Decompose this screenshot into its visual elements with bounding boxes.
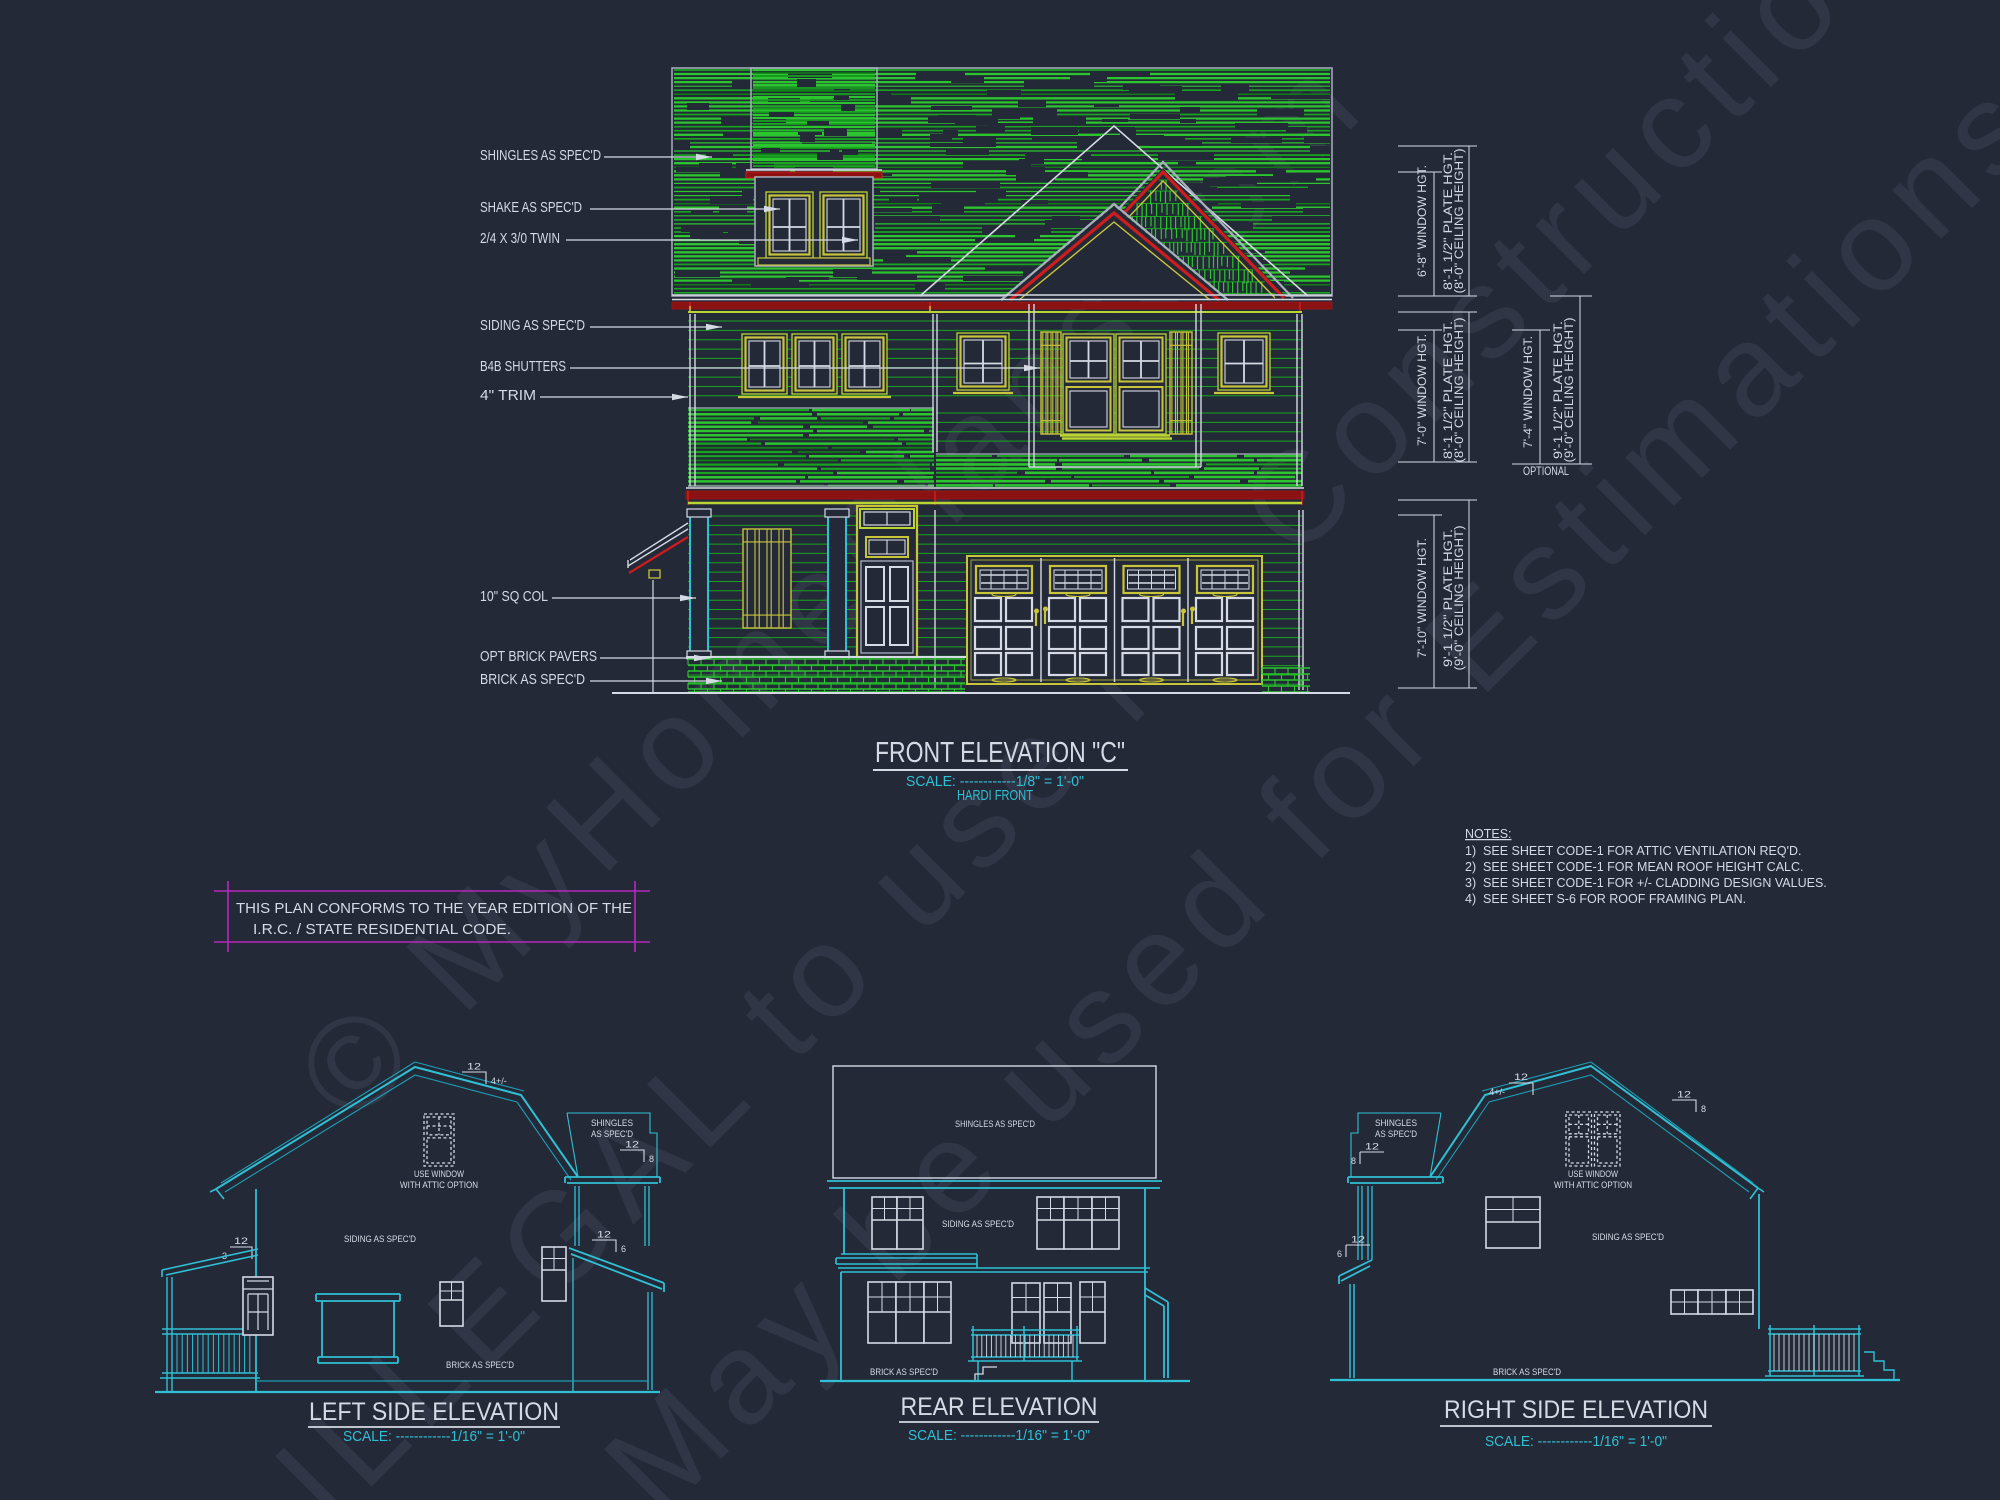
svg-text:NOTES:: NOTES: [1465, 827, 1512, 841]
svg-text:BRICK AS SPEC'D: BRICK AS SPEC'D [446, 1360, 514, 1370]
svg-text:6: 6 [621, 1244, 626, 1254]
svg-text:SCALE: ------------1/16" = 1'-: SCALE: ------------1/16" = 1'-0" [1485, 1433, 1667, 1450]
svg-text:SCALE: ------------1/16" = 1'-: SCALE: ------------1/16" = 1'-0" [343, 1428, 525, 1445]
svg-text:OPT BRICK PAVERS: OPT BRICK PAVERS [480, 648, 597, 665]
svg-text:WITH ATTIC OPTION: WITH ATTIC OPTION [400, 1180, 478, 1190]
svg-text:6'-8" WINDOW HGT.: 6'-8" WINDOW HGT. [1417, 165, 1429, 277]
svg-text:B4B SHUTTERS: B4B SHUTTERS [480, 358, 566, 375]
svg-text:HARDI FRONT: HARDI FRONT [957, 787, 1033, 804]
svg-text:OPTIONAL: OPTIONAL [1523, 466, 1569, 478]
svg-text:(8'-0" CEILING HEIGHT): (8'-0" CEILING HEIGHT) [1454, 148, 1466, 293]
svg-text:12: 12 [1351, 1235, 1365, 1245]
svg-text:6: 6 [1337, 1249, 1342, 1259]
svg-text:THIS PLAN CONFORMS TO THE YEAR: THIS PLAN CONFORMS TO THE YEAR EDITION O… [236, 900, 632, 917]
svg-text:1) SEE SHEET CODE-1 FOR ATTIC: 1) SEE SHEET CODE-1 FOR ATTIC VENTILATIO… [1465, 844, 1801, 858]
svg-text:SIDING AS SPEC'D: SIDING AS SPEC'D [942, 1219, 1014, 1229]
svg-text:2) SEE SHEET CODE-1 FOR MEAN: 2) SEE SHEET CODE-1 FOR MEAN ROOF HEIGHT… [1465, 860, 1803, 874]
svg-text:7'-0" WINDOW HGT.: 7'-0" WINDOW HGT. [1417, 334, 1429, 446]
svg-text:BRICK AS SPEC'D: BRICK AS SPEC'D [870, 1367, 938, 1377]
svg-text:2/4 X 3/0 TWIN: 2/4 X 3/0 TWIN [480, 230, 560, 247]
svg-text:7'-4" WINDOW HGT.: 7'-4" WINDOW HGT. [1523, 336, 1535, 448]
svg-text:4+/-: 4+/- [1489, 1087, 1505, 1097]
svg-text:BRICK AS SPEC'D: BRICK AS SPEC'D [480, 671, 585, 688]
svg-text:SHAKE AS SPEC'D: SHAKE AS SPEC'D [480, 199, 582, 216]
svg-text:SHINGLES: SHINGLES [591, 1118, 633, 1128]
svg-text:SHINGLES: SHINGLES [1375, 1118, 1417, 1128]
svg-text:7'-10" WINDOW HGT.: 7'-10" WINDOW HGT. [1417, 538, 1429, 658]
svg-text:12: 12 [1365, 1142, 1379, 1152]
svg-text:12: 12 [1677, 1090, 1691, 1100]
svg-text:WITH ATTIC OPTION: WITH ATTIC OPTION [1554, 1180, 1632, 1190]
svg-text:BRICK AS SPEC'D: BRICK AS SPEC'D [1493, 1367, 1561, 1377]
svg-text:4) SEE SHEET S-6 FOR ROOF FRA: 4) SEE SHEET S-6 FOR ROOF FRAMING PLAN. [1465, 892, 1746, 906]
svg-text:10" SQ COL: 10" SQ COL [480, 588, 548, 605]
svg-text:SIDING AS SPEC'D: SIDING AS SPEC'D [1592, 1232, 1664, 1242]
svg-text:AS SPEC'D: AS SPEC'D [591, 1129, 633, 1139]
svg-text:RIGHT SIDE ELEVATION: RIGHT SIDE ELEVATION [1444, 1396, 1708, 1424]
svg-text:3) SEE SHEET CODE-1 FOR +/- C: 3) SEE SHEET CODE-1 FOR +/- CLADDING DES… [1465, 876, 1827, 890]
svg-text:12: 12 [1514, 1072, 1528, 1082]
svg-text:12: 12 [467, 1062, 481, 1072]
svg-text:SIDING AS SPEC'D: SIDING AS SPEC'D [344, 1234, 416, 1244]
svg-text:SIDING AS SPEC'D: SIDING AS SPEC'D [480, 317, 585, 334]
svg-text:USE WINDOW: USE WINDOW [1568, 1169, 1618, 1179]
svg-text:I.R.C. / STATE RESIDENTIAL COD: I.R.C. / STATE RESIDENTIAL CODE. [253, 921, 511, 938]
svg-text:(9'-0" CEILING HEIGHT): (9'-0" CEILING HEIGHT) [1564, 317, 1576, 462]
svg-text:LEFT SIDE ELEVATION: LEFT SIDE ELEVATION [309, 1398, 559, 1426]
svg-text:4" TRIM: 4" TRIM [480, 387, 536, 404]
svg-text:AS SPEC'D: AS SPEC'D [1375, 1129, 1417, 1139]
svg-text:(9'-0" CEILING HEIGHT): (9'-0" CEILING HEIGHT) [1454, 525, 1466, 670]
svg-text:SHINGLES AS SPEC'D: SHINGLES AS SPEC'D [480, 147, 601, 164]
svg-text:8: 8 [649, 1154, 654, 1164]
svg-text:REAR ELEVATION: REAR ELEVATION [901, 1393, 1098, 1421]
svg-text:8: 8 [1701, 1104, 1706, 1114]
svg-text:8: 8 [1351, 1156, 1356, 1166]
svg-text:SHINGLES AS SPEC'D: SHINGLES AS SPEC'D [955, 1119, 1035, 1129]
svg-text:FRONT ELEVATION "C": FRONT ELEVATION "C" [875, 737, 1125, 769]
svg-text:12: 12 [597, 1230, 611, 1240]
svg-text:(8'-0" CEILING HEIGHT): (8'-0" CEILING HEIGHT) [1454, 317, 1466, 462]
svg-text:12: 12 [234, 1236, 248, 1246]
svg-text:12: 12 [625, 1140, 639, 1150]
svg-text:4+/-: 4+/- [491, 1076, 507, 1086]
svg-text:USE WINDOW: USE WINDOW [414, 1169, 464, 1179]
svg-text:SCALE: ------------1/16" = 1'-: SCALE: ------------1/16" = 1'-0" [908, 1427, 1090, 1444]
